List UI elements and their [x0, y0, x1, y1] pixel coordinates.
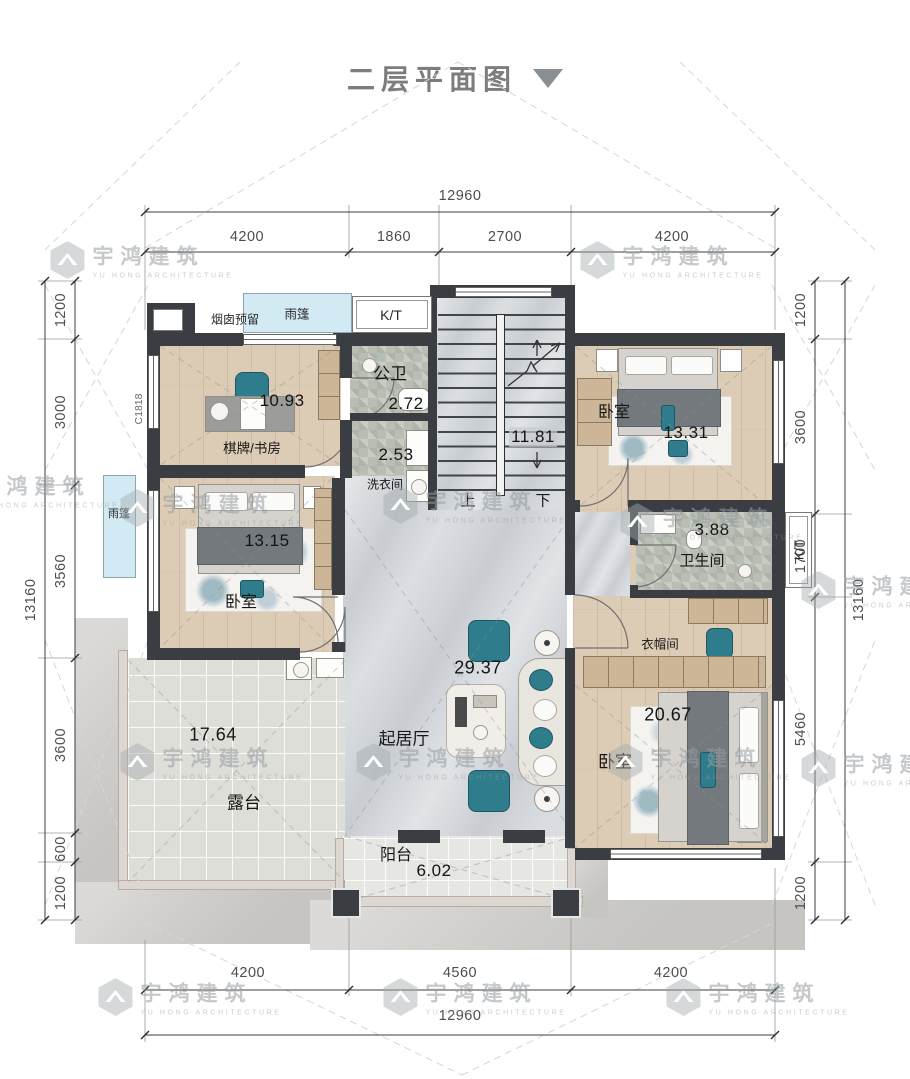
- stairs-area: 11.81: [509, 427, 557, 447]
- kt-right-label: K/T: [792, 540, 807, 560]
- laundry-name: 洗衣间: [367, 476, 403, 493]
- dim-left-seg-6: 1200: [53, 876, 69, 910]
- window-stair-top: [455, 287, 552, 297]
- margin-fold-lines: [45, 62, 875, 1075]
- wall-study-bath-b: [340, 420, 352, 478]
- floor-plan-canvas: 二层平面图: [0, 0, 910, 1079]
- dim-left-seg-5: 600: [53, 836, 69, 862]
- wall-south-left-a: [147, 648, 300, 660]
- stair-direction-arrows: [508, 340, 560, 468]
- window-bedroom-se-south: [610, 849, 762, 859]
- canopy-left-label: 雨篷: [108, 505, 130, 521]
- cloakroom-name: 衣帽间: [641, 634, 679, 653]
- dim-left-seg-4: 3600: [53, 728, 69, 762]
- window-bedroom-w-left: [148, 490, 159, 612]
- dim-bottom-seg-1: 4200: [231, 965, 265, 981]
- wall-top-mid: [333, 333, 436, 346]
- dim-bottom-seg-2: 4560: [443, 965, 477, 981]
- wall-bedroom-w-east-b: [332, 642, 345, 652]
- wall-bath-laundry: [350, 413, 432, 421]
- wall-study-bottom: [147, 465, 305, 478]
- bedroom-ne-name: 卧室: [598, 398, 630, 422]
- stairs-down: 下: [535, 490, 550, 511]
- chimney-label: 烟囱预留: [211, 311, 259, 328]
- dim-left-seg-3: 3560: [53, 554, 69, 588]
- dim-right-seg-2: 3600: [793, 410, 809, 444]
- dim-bottom-total: 12960: [439, 1008, 482, 1024]
- study-name: 棋牌/书房: [223, 437, 281, 457]
- dim-top-seg-2: 1860: [377, 229, 411, 245]
- window-bedroom-se-right: [773, 700, 784, 837]
- study-area: 10.93: [259, 391, 304, 411]
- bedroom-w-name: 卧室: [225, 588, 257, 612]
- window-code-label: C1818: [133, 394, 145, 425]
- dim-left-seg-1: 1200: [53, 293, 69, 327]
- window-study-left: [148, 355, 159, 429]
- wall-top-right: [573, 333, 785, 346]
- balcony-area: 6.02: [416, 861, 451, 881]
- dim-left-total: 13160: [23, 579, 39, 622]
- wall-bedroom-w-east-a: [332, 478, 345, 595]
- bathroom-area: 3.88: [694, 520, 729, 540]
- window-canopy-top: [243, 334, 337, 345]
- canopy-left: [103, 475, 136, 578]
- chimney-flue: [153, 309, 183, 331]
- wall-living-east-b: [565, 648, 575, 848]
- dim-top-total: 12960: [439, 188, 482, 204]
- living-area: 29.37: [454, 658, 502, 679]
- window-bedroom-ne-right: [773, 360, 784, 464]
- wall-living-east-a: [565, 510, 575, 595]
- balcony-name: 阳台: [380, 841, 412, 865]
- wall-bath-south: [630, 590, 785, 598]
- public-bath-name: 公卫: [373, 360, 407, 385]
- terrace-area: 17.64: [189, 725, 237, 746]
- dim-left-seg-2: 3000: [53, 395, 69, 429]
- balcony-column-right: [553, 890, 579, 916]
- public-bath-area: 2.72: [388, 394, 423, 414]
- bathroom-name: 卫生间: [679, 550, 724, 571]
- dim-top-seg-3: 2700: [488, 229, 522, 245]
- bedroom-se-area: 20.67: [644, 705, 692, 726]
- balcony-column-left: [333, 890, 359, 916]
- wall-living-balcony-post-b: [503, 830, 545, 843]
- wall-ne-south-b: [628, 500, 785, 512]
- terrace-name: 露台: [227, 789, 261, 814]
- dim-top-seg-1: 4200: [230, 229, 264, 245]
- wall-bath-west-a: [630, 500, 638, 545]
- stairs-up: 上: [460, 490, 475, 511]
- living-name: 起居厅: [379, 725, 430, 750]
- kt-top-label: K/T: [380, 307, 402, 323]
- dim-right-total: 13160: [851, 579, 867, 622]
- dim-bottom-seg-3: 4200: [654, 965, 688, 981]
- laundry-area: 2.53: [378, 445, 413, 465]
- dim-top-seg-4: 4200: [655, 229, 689, 245]
- bedroom-w-area: 13.15: [244, 531, 289, 551]
- dim-right-seg-4: 5460: [793, 712, 809, 746]
- wall-stair-east: [565, 285, 575, 510]
- wall-study-bath-a: [340, 346, 352, 378]
- dim-right-seg-5: 1200: [793, 876, 809, 910]
- bedroom-ne-area: 13.31: [663, 423, 708, 443]
- bedroom-se-name: 卧室: [598, 748, 632, 773]
- canopy-top-label: 雨篷: [284, 304, 309, 323]
- dim-right-seg-1: 1200: [793, 293, 809, 327]
